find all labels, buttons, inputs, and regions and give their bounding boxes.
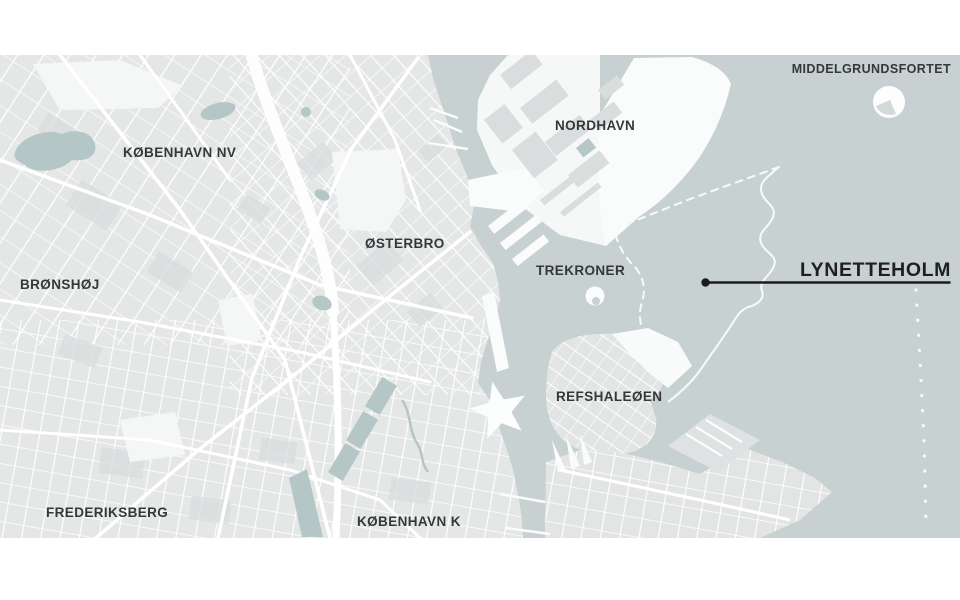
copenhagen-map: KØBENHAVN NV BRØNSHØJ ØSTERBRO NORDHAVN … [0,0,960,600]
map-label-refshaleoen: REFSHALEØEN [556,389,662,404]
map-label-bronshoj: BRØNSHØJ [20,277,100,292]
map-label-kobenhavn-nv: KØBENHAVN NV [123,145,236,160]
middelgrundsfortet-island [873,86,905,118]
map-label-osterbro: ØSTERBRO [365,236,445,251]
trekroner-fort [586,287,605,306]
map-label-frederiksberg: FREDERIKSBERG [46,505,168,520]
callout-pointer-dot [701,278,709,286]
map-label-nordhavn: NORDHAVN [555,118,635,133]
map-label-kobenhavn-k: KØBENHAVN K [357,514,461,529]
map-label-middelgrundsfortet: MIDDELGRUNDSFORTET [792,62,951,76]
map-label-trekroner: TREKRONER [536,263,625,278]
map-label-lynetteholm: LYNETTEHOLM [800,259,951,282]
